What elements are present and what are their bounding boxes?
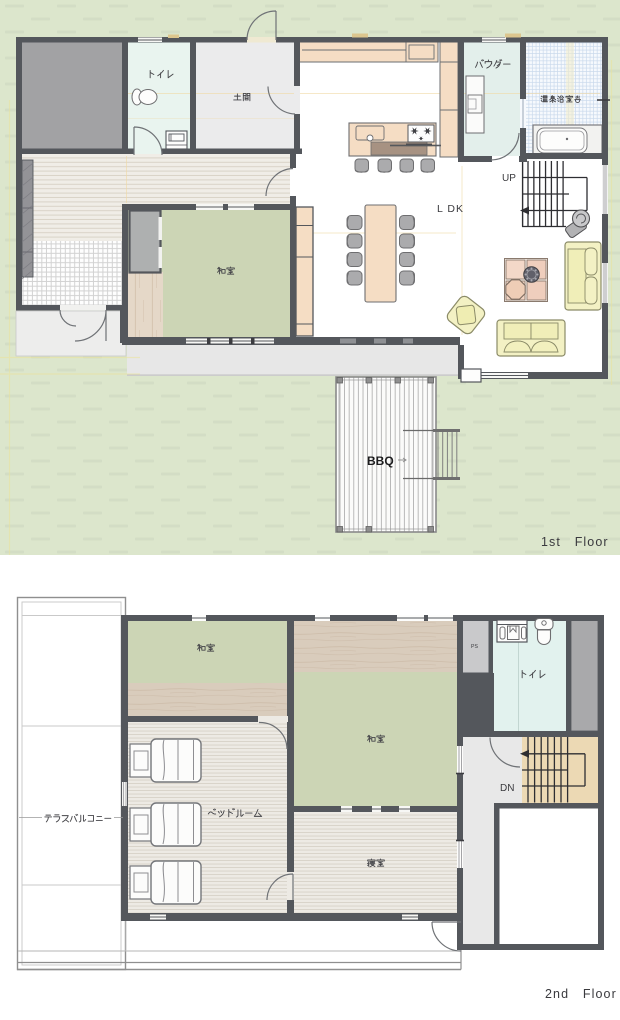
svg-text:1st Floor: 1st Floor <box>541 535 609 549</box>
svg-text:BBQ: BBQ <box>367 454 394 468</box>
svg-text:L DK: L DK <box>437 203 464 215</box>
svg-text:DN: DN <box>500 783 514 794</box>
svg-text:PS: PS <box>471 644 478 650</box>
svg-text:UP: UP <box>502 173 516 184</box>
svg-text:2nd Floor: 2nd Floor <box>545 987 617 1001</box>
